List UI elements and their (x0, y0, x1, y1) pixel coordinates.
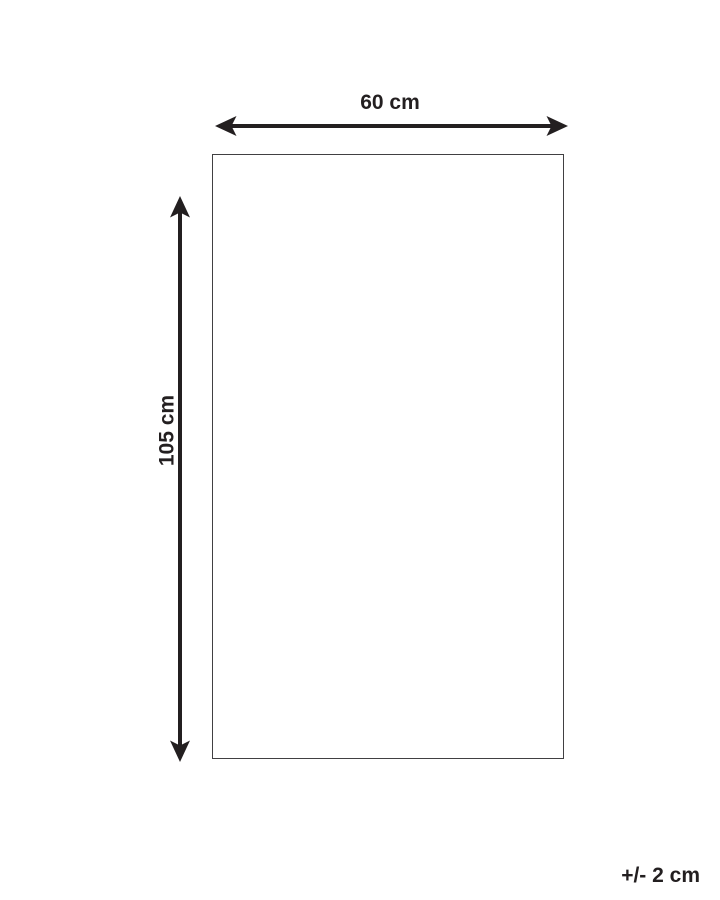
tolerance-label: +/- 2 cm (621, 865, 700, 886)
dimension-arrows (0, 0, 720, 900)
width-label: 60 cm (212, 92, 568, 113)
height-label: 105 cm (157, 361, 178, 501)
dimension-diagram: 60 cm 105 cm +/- 2 cm (0, 0, 720, 900)
width-dimension-arrow (215, 116, 568, 136)
